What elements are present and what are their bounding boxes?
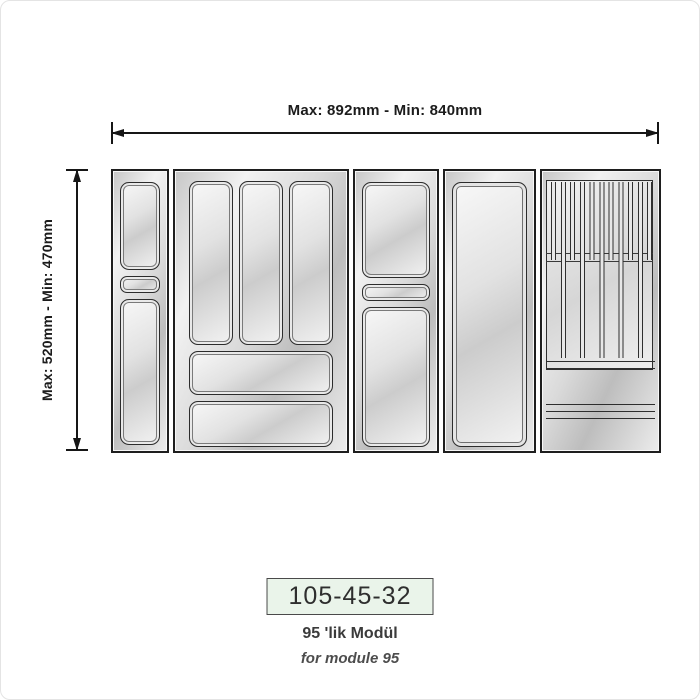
arrow-up-icon [73,169,81,182]
knife-block-rail-line [546,361,655,362]
arrow-down-icon [73,438,81,451]
depth-dimension-label: Max: 520mm - Min: 470mm [39,219,55,401]
knife-block-rail-line [546,411,655,412]
product-code: 105-45-32 [289,582,412,610]
module-two-compartment-tray [353,169,439,453]
arrow-right-icon [646,129,659,137]
depth-dimension-line [76,170,78,450]
width-dimension: Max: 892mm - Min: 840mm [111,125,659,145]
module-caption-english: for module 95 [1,650,699,667]
module-caption-turkish: 95 'lik Modül [1,625,699,643]
vertical-slot [289,181,333,345]
compartment [120,299,160,445]
width-dimension-label: Max: 892mm - Min: 840mm [288,102,483,119]
horizontal-compartment [189,401,333,447]
knife-block-rail-line [546,368,655,369]
knife-block-rail-line [546,404,655,405]
divider-slot [120,276,160,293]
module-open-tray [443,169,536,453]
compartment [120,182,160,270]
knife-block-rail-line [546,418,655,419]
cutlery-tray-drawing [111,169,661,453]
depth-dimension: Max: 520mm - Min: 470mm [69,169,89,451]
module-narrow-tray [111,169,169,453]
compartment [452,182,527,447]
arrow-left-icon [111,129,124,137]
vertical-slot [189,181,233,345]
width-dimension-line [112,132,658,134]
vertical-slot [239,181,283,345]
product-diagram-canvas: Max: 892mm - Min: 840mm Max: 520mm - Min… [0,0,700,700]
compartment [362,307,430,447]
knife-slots-long [561,182,643,358]
divider-slot [362,284,430,301]
horizontal-compartment [189,351,333,395]
module-cutlery-tray [173,169,349,453]
compartment [362,182,430,278]
module-knife-block [540,169,661,453]
product-code-badge: 105-45-32 [267,578,434,615]
